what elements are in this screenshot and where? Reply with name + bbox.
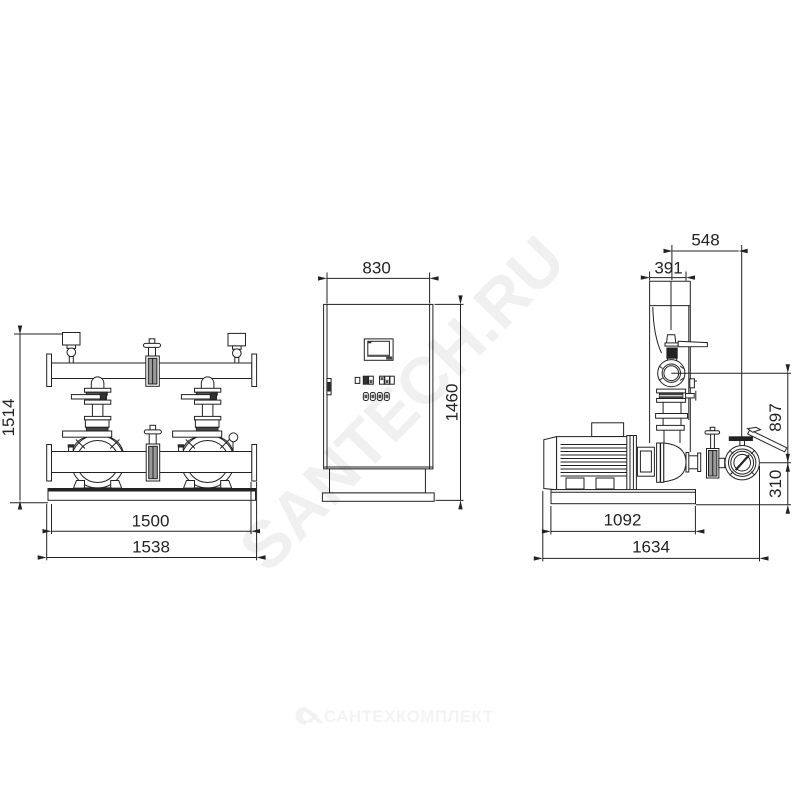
svg-text:1634: 1634 [632,538,670,557]
svg-text:830: 830 [362,259,390,278]
svg-text:1514: 1514 [0,399,18,437]
svg-text:1092: 1092 [604,511,642,530]
svg-text:548: 548 [691,231,719,250]
svg-text:1500: 1500 [132,512,170,531]
svg-text:897: 897 [766,403,785,431]
svg-text:1538: 1538 [132,538,170,557]
svg-text:САНТЕХКОМПЛЕКТ: САНТЕХКОМПЛЕКТ [324,707,494,726]
svg-text:SANTECH.RU: SANTECH.RU [225,222,579,585]
svg-text:391: 391 [654,259,682,278]
svg-text:310: 310 [766,470,785,498]
